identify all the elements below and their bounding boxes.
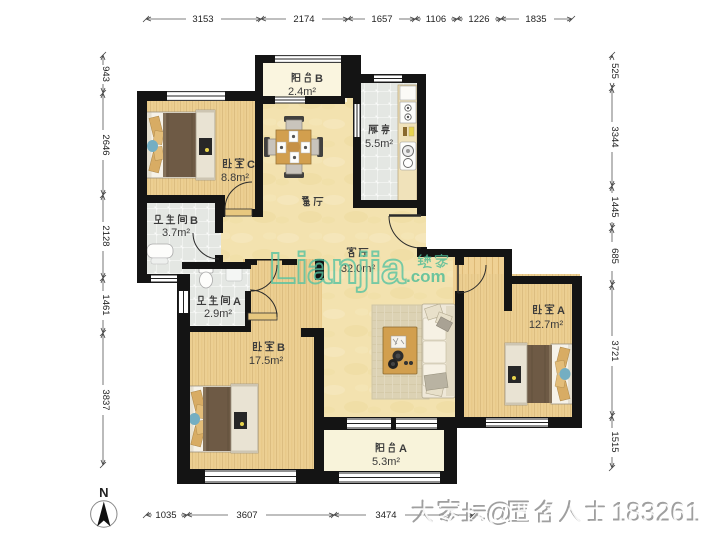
svg-text:5.3m²: 5.3m² <box>372 456 400 468</box>
svg-text:1106: 1106 <box>426 14 446 25</box>
svg-text:1226: 1226 <box>468 14 489 25</box>
svg-text:3.7m²: 3.7m² <box>162 227 190 239</box>
svg-text:2.9m²: 2.9m² <box>204 308 232 320</box>
svg-text:1035: 1035 <box>155 510 176 521</box>
svg-text:3721: 3721 <box>609 340 620 361</box>
svg-text:12.7m²: 12.7m² <box>529 319 564 331</box>
svg-text:3837: 3837 <box>100 389 111 410</box>
svg-text:A: A <box>399 443 407 455</box>
svg-text:3344: 3344 <box>609 126 620 147</box>
svg-text:3607: 3607 <box>236 510 257 521</box>
svg-text:C: C <box>247 159 255 171</box>
svg-text:525: 525 <box>609 63 620 79</box>
svg-text:3153: 3153 <box>192 14 213 25</box>
svg-text:A: A <box>557 305 565 317</box>
svg-text:1445: 1445 <box>609 196 620 217</box>
svg-text:@: @ <box>487 499 514 529</box>
svg-text:A: A <box>233 296 241 308</box>
svg-text:5.5m²: 5.5m² <box>365 138 393 150</box>
svg-text:.com: .com <box>406 267 446 286</box>
svg-text:N: N <box>99 485 108 500</box>
svg-text:17.5m²: 17.5m² <box>249 355 284 367</box>
svg-text:1515: 1515 <box>609 431 620 452</box>
svg-text:1657: 1657 <box>371 14 392 25</box>
svg-text:B: B <box>315 73 323 85</box>
svg-text:2646: 2646 <box>100 134 111 155</box>
svg-text:B: B <box>190 215 198 227</box>
svg-text:1461: 1461 <box>100 294 111 315</box>
svg-text:183261: 183261 <box>613 498 701 528</box>
svg-text:B: B <box>277 342 285 354</box>
svg-text:3474: 3474 <box>375 510 396 521</box>
svg-text:2174: 2174 <box>293 14 314 25</box>
svg-text:943: 943 <box>100 66 111 82</box>
svg-text:685: 685 <box>609 248 620 264</box>
svg-text:2.4m²: 2.4m² <box>288 86 316 98</box>
svg-text:2128: 2128 <box>100 225 111 246</box>
svg-text:1835: 1835 <box>525 14 546 25</box>
svg-text:Lianjia: Lianjia <box>269 244 406 293</box>
svg-text:8.8m²: 8.8m² <box>221 172 249 184</box>
